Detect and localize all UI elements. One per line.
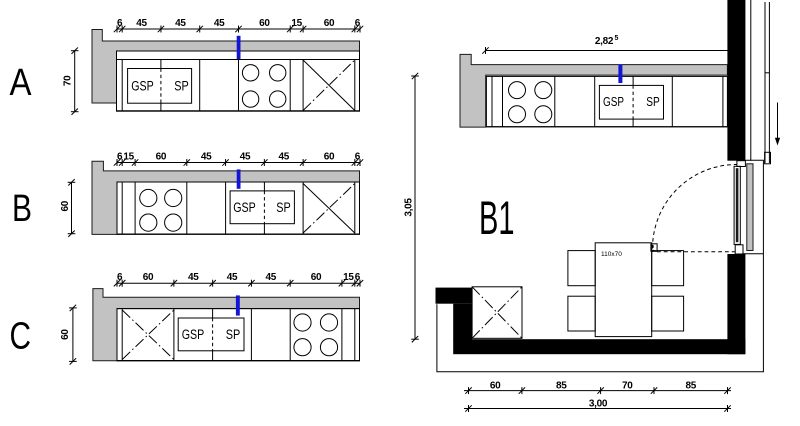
svg-text:70: 70 — [63, 75, 74, 86]
svg-text:6: 6 — [355, 18, 361, 29]
svg-text:60: 60 — [143, 272, 154, 283]
svg-text:45: 45 — [175, 18, 186, 29]
svg-text:C: C — [10, 316, 32, 358]
svg-text:6: 6 — [117, 18, 123, 29]
svg-text:SP: SP — [646, 95, 660, 109]
svg-text:B: B — [12, 188, 32, 230]
svg-text:45: 45 — [278, 152, 289, 163]
svg-text:45: 45 — [188, 272, 199, 283]
svg-text:60: 60 — [60, 329, 71, 340]
svg-text:45: 45 — [136, 18, 147, 29]
svg-text:6: 6 — [117, 272, 123, 283]
svg-text:45: 45 — [214, 18, 225, 29]
svg-text:85: 85 — [556, 381, 567, 392]
svg-text:2,82: 2,82 — [595, 36, 614, 47]
svg-text:70: 70 — [622, 381, 633, 392]
svg-text:GSP: GSP — [603, 95, 624, 109]
svg-text:3,05: 3,05 — [403, 198, 414, 217]
svg-text:3,00: 3,00 — [589, 399, 608, 410]
svg-text:60: 60 — [311, 272, 322, 283]
svg-text:SP: SP — [276, 200, 291, 215]
svg-text:GSP: GSP — [182, 327, 205, 342]
svg-text:A: A — [10, 62, 33, 104]
svg-text:15: 15 — [343, 272, 354, 283]
svg-text:6: 6 — [355, 152, 361, 163]
svg-text:45: 45 — [227, 272, 238, 283]
svg-text:110x70: 110x70 — [601, 251, 622, 258]
svg-text:60: 60 — [324, 152, 335, 163]
svg-text:60: 60 — [259, 18, 270, 29]
svg-text:60: 60 — [156, 152, 167, 163]
svg-text:6: 6 — [117, 152, 123, 163]
svg-text:SP: SP — [174, 78, 189, 93]
svg-text:60: 60 — [490, 381, 501, 392]
svg-text:60: 60 — [324, 18, 335, 29]
svg-text:GSP: GSP — [233, 200, 256, 215]
svg-text:45: 45 — [266, 272, 277, 283]
svg-text:GSP: GSP — [131, 78, 154, 93]
svg-text:5: 5 — [615, 35, 619, 42]
svg-text:SP: SP — [226, 327, 241, 342]
svg-text:85: 85 — [686, 381, 697, 392]
svg-text:45: 45 — [240, 152, 251, 163]
svg-text:6: 6 — [355, 272, 361, 283]
svg-text:45: 45 — [201, 152, 212, 163]
svg-text:B1: B1 — [479, 191, 515, 244]
svg-text:15: 15 — [123, 152, 134, 163]
svg-text:15: 15 — [291, 18, 302, 29]
svg-text:60: 60 — [60, 200, 71, 211]
